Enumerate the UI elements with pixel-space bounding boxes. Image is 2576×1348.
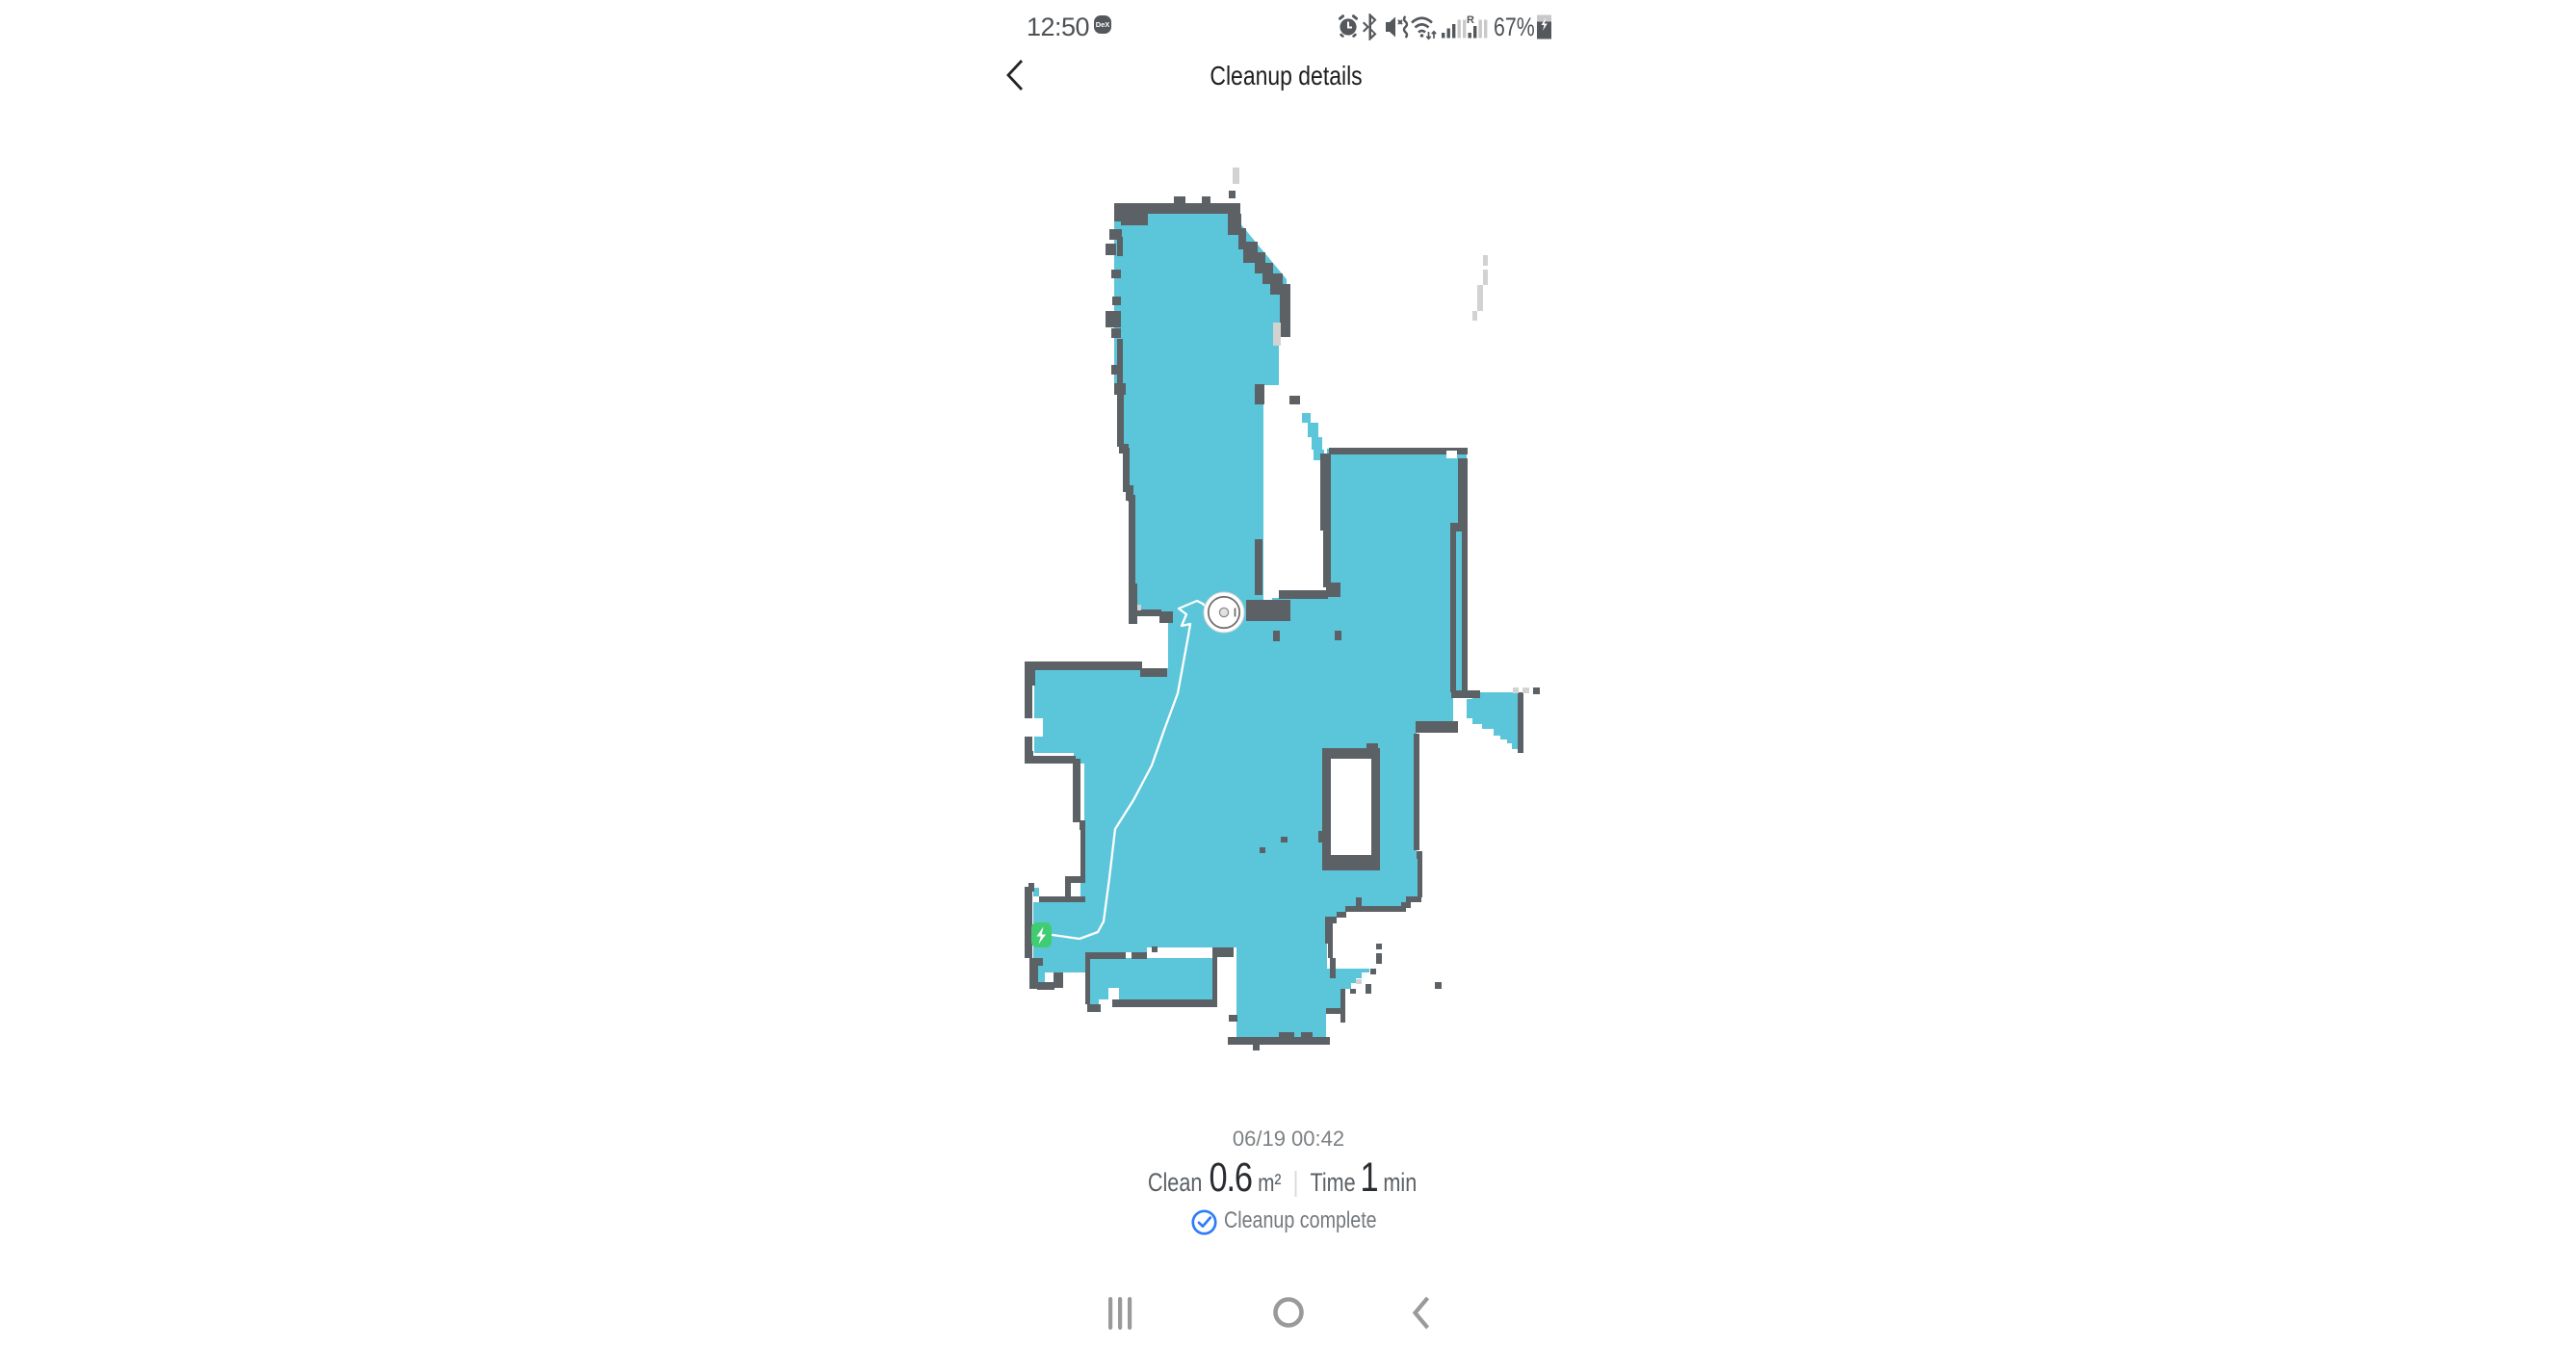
svg-text:R: R <box>1467 14 1474 26</box>
